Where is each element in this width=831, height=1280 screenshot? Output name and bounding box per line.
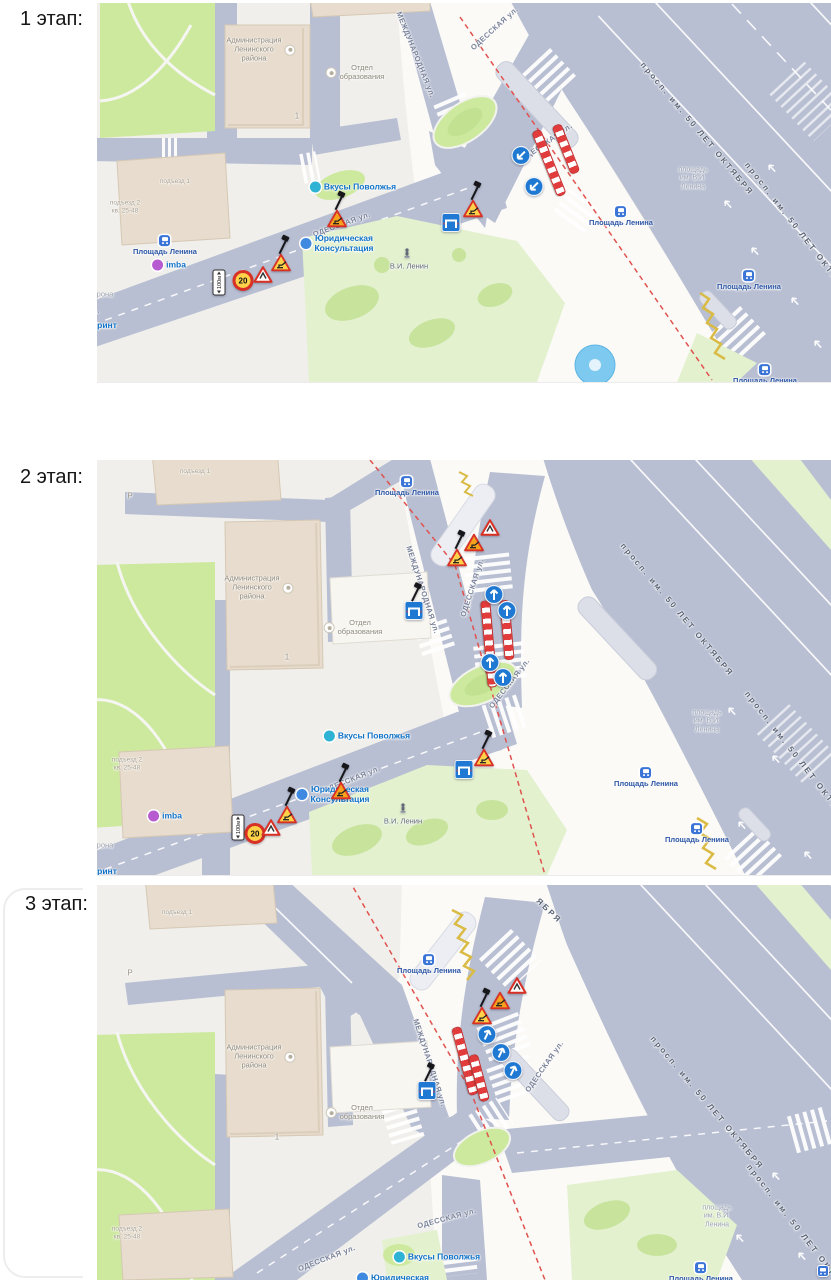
label-text: Юридическая Консультация [314,233,373,253]
bus-stop-icon [616,206,627,217]
roadworks-icon [474,749,494,767]
label-text: Площадь Ленина [375,489,439,498]
map-overlay-stage-1: МЕЖДУНАРОДНАЯ ул.ОДЕССКАЯ ул.ОДЕССКАЯ ул… [97,3,831,382]
speed-limit-20-sign: 20 [233,270,254,296]
label-text: Площадь Ленина [717,283,781,292]
mandatory-direction-sign [524,177,544,202]
sign-pole [471,185,480,200]
sign-pole [335,195,344,210]
sign-pole [339,767,348,782]
building-entrance-icon [285,45,296,56]
warning-triangle-icon [254,266,273,283]
label-text: Площадь Ленина [614,780,678,789]
detour-scheme-sign [455,760,474,784]
label-text: рона [97,291,113,300]
label-text: Вкусы Поволжья [324,182,396,192]
stage-3-label: 3 этап: [25,893,88,916]
poi-icon [296,789,307,800]
bus-stop-icon [817,1264,829,1280]
detour-diagram-icon [442,213,461,232]
sign-pole [482,734,491,749]
bus-label: Площадь Ленина [589,206,653,228]
detour-scheme-sign [418,1081,437,1105]
zone-distance-plate-sign: 100м [213,270,226,301]
bus-stop-icon [744,270,755,281]
label-text: Площадь Ленина [733,377,797,383]
label-text: Отдел образования [338,619,383,637]
street-label: МЕЖДУНАРОДНАЯ ул. [394,11,437,99]
speed-limit-icon: 20 [233,270,254,291]
label-text: площадь им. В.И. Ленина [678,167,707,192]
label-text: Отдел образования [340,1104,385,1122]
label-text: подъезд 2 кв. 25-48 [112,756,142,771]
label-text: просп. им. 50 ЛЕТ ОКТЯБРЯ [638,60,755,197]
window-corner-artifact [3,888,83,1278]
building-entrance-icon [326,1108,337,1119]
label-text: Р [127,491,132,500]
label-text: МЕЖДУНАРОДНАЯ ул. [394,11,437,99]
roadworks-sign [447,549,467,572]
bus-label: Площадь Ленина [665,823,729,845]
poi-icon [357,1273,368,1280]
lenin-monument-icon [403,246,411,264]
label-text: ОДЕССКАЯ ул. [417,1207,478,1231]
bldg-label: Отдел образования [326,1104,385,1122]
num-label: 1 [275,1132,279,1141]
bus-stop-icon [641,767,652,778]
tiny-label: подъезд 1 [160,178,190,186]
roadworks-sign [277,806,297,829]
poi-label: Юридическая [357,1273,429,1280]
bus-stop-icon [402,476,413,487]
poi-icon [324,731,335,742]
detour-diagram-icon [418,1081,437,1100]
ghost-label: площадь им. В.И. Ленина [678,167,707,192]
mandatory-direction-sign [511,146,531,171]
roadworks-icon [472,1007,492,1025]
mandatory-direction-sign [493,668,513,693]
map-stage-2: подъезд 1Площадь ЛенинаАдминистрация Лен… [97,460,831,876]
label-text: просп. им. 50 ЛЕТ ОКТЯБРЯ [648,1034,765,1171]
stage-1-label: 1 этап: [20,8,83,31]
warning-triangle-sign [254,266,273,288]
label-text: ЯБРЯ [534,896,564,925]
label-text: imba [166,260,186,270]
bldg-label: Администрация Ленинского района [224,575,293,602]
tiny-label: подъезд 2 кв. 25-48 [112,756,142,771]
direction-arrow-icon [524,177,544,197]
avenue-label: просп. им. 50 ЛЕТ ОКТЯБРЯ [743,161,831,302]
tiny-label: подъезд 2 кв. 25-48 [112,1225,142,1240]
building-entrance-icon [285,1052,296,1063]
roadworks-sign [331,782,351,805]
roadworks-sign [271,254,291,277]
avenue-label: просп. им. 50 ЛЕТ ОКТЯБРЯ [743,690,831,831]
bldg-label: Отдел образования [326,64,385,82]
avenue-label: просп. им. 50 ЛЕТ ОКТЯБРЯ [638,60,755,197]
lenin-monument-icon [399,801,407,819]
roadworks-icon [277,806,297,824]
street-label: ОДЕССКАЯ ул. [297,1244,357,1274]
poi-icon [310,182,321,193]
bus-label: Площадь Ленина [717,270,781,292]
mandatory-direction-sign [503,1061,523,1086]
roadworks-sign [474,749,494,772]
label-text: Площадь Ленина [589,219,653,228]
bldg-label: Администрация Ленинского района [226,37,295,64]
distance-plate-icon: 100м [213,270,226,296]
label-text: Площадь Ленина [669,1275,733,1280]
direction-arrow-icon [477,1025,497,1045]
poi-label: Вкусы Поволжья [310,182,396,193]
detour-scheme-sign [405,601,424,625]
roadworks-icon [463,200,483,218]
poi-label: Юридическая Консультация [300,233,373,253]
label-text: площадь им. В.И. Ленина [702,1205,731,1230]
bus-label: Площадь Ленина [133,235,197,257]
zone-distance-plate-sign: 100м [232,815,245,846]
direction-arrow-icon [511,146,531,166]
detour-diagram-icon [455,760,474,779]
roadworks-sign [327,210,347,233]
poi-icon [394,1252,405,1263]
sign-pole [425,1066,434,1081]
label-text: ринт [97,320,117,330]
ghost-label: площадь им. В.И. Ленина [702,1205,731,1230]
label-text: ринт [97,866,117,876]
map-overlay-stage-2: подъезд 1Площадь ЛенинаАдминистрация Лен… [97,460,831,875]
label-text: Площадь Ленина [665,836,729,845]
distance-value: 100м [236,821,242,834]
tiny2-label: рона [97,291,113,300]
speed-value: 20 [251,830,260,839]
tiny2-label: рона [97,842,113,851]
label-text: 1 [295,111,299,120]
label-text: Площадь Ленина [397,967,461,976]
distance-value: 100м [217,276,223,289]
stage-2-label: 2 этап: [20,466,83,489]
poi-label: ринт [97,866,117,876]
label-text: просп. им. 50 ЛЕТ ОКТЯБРЯ [743,161,831,302]
poi-label: Вкусы Поволжья [324,731,410,742]
label-text: просп. им. 50 ЛЕТ ОКТЯБРЯ [618,541,735,678]
bus-stop-icon [696,1262,707,1273]
roadworks-icon [271,254,291,272]
tiny-label: подъезд 1 [180,468,210,476]
street-label: ОДЕССКАЯ ул. [469,5,520,52]
map-stage-3: подъезд 1РПлощадь ЛенинаЯБРЯАдминистраци… [97,885,831,1280]
roadworks-icon [331,782,351,800]
roadworks-sign [490,992,510,1015]
bus-stop-icon [160,235,171,246]
label-text: Администрация Ленинского района [226,1044,281,1071]
label-text: Площадь Ленина [133,248,197,257]
roadworks-sign [463,200,483,223]
bldg-label: Отдел образования [324,619,383,637]
label-text: подъезд 1 [180,468,210,476]
label-text: ОДЕССКАЯ ул. [524,1040,566,1095]
bus-label: Площадь Ленина [669,1262,733,1280]
sign-pole [480,992,489,1007]
map-overlay-stage-3: подъезд 1РПлощадь ЛенинаЯБРЯАдминистраци… [97,885,831,1280]
roadworks-icon [464,534,484,552]
poi-label: ринт [97,320,117,330]
roadworks-icon [327,210,347,228]
sign-pole [412,586,421,601]
label-text: рона [97,842,113,851]
tiny-label: подъезд 1 [162,909,192,917]
label-text: ОДЕССКАЯ ул. [469,5,520,52]
num-label: 1 [285,652,289,661]
label-text: просп. им. 50 ЛЕТ ОКТЯБРЯ [743,690,831,831]
label-text: просп. им. 50 ЛЕТ ОКТЯБРЯ [745,1163,831,1280]
speed-value: 20 [239,277,248,286]
detour-diagram-icon [405,601,424,620]
statue-icon [403,248,411,259]
num-label: 1 [295,111,299,120]
label-text: Администрация Ленинского района [224,575,279,602]
poi-label: Вкусы Поволжья [394,1252,480,1263]
label-text: ОДЕССКАЯ ул. [297,1244,357,1274]
street-label: ОДЕССКАЯ ул. [524,1040,566,1095]
avenue-label: просп. им. 50 ЛЕТ ОКТЯБРЯ [618,541,735,678]
label-text: площадь им. В.И. Ленина [692,710,721,735]
building-entrance-icon [326,68,337,79]
bus-label: Площадь Ленина [375,476,439,498]
bus-stop-icon [692,823,703,834]
distance-plate-icon: 100м [232,815,245,841]
avenue-label: просп. им. 50 ЛЕТ ОКТЯБРЯ [648,1034,765,1171]
bus-label: Площадь Ленина [397,954,461,976]
sign-pole [279,239,288,254]
direction-arrow-icon [493,668,513,688]
label-text: подъезд 1 [162,909,192,917]
poi-label: imba [148,811,182,822]
sign-pole [455,534,464,549]
street-label: ОДЕССКАЯ ул. [97,306,101,335]
document-sheet: 1 этап: 2 этап: 3 этап: [0,0,831,1280]
ghost-label: площадь им. В.И. Ленина [692,710,721,735]
label-text: подъезд 1 [160,178,190,186]
label-text: Отдел образования [340,64,385,82]
bus-icon [817,1265,829,1277]
building-entrance-icon [324,623,335,634]
label-text: 1 [285,652,289,661]
num-label: Р [127,968,132,977]
bus-stop-icon [760,364,771,375]
bus-label: Площадь Ленина [614,767,678,789]
direction-arrow-icon [497,601,517,621]
roadworks-sign [464,534,484,557]
label-text: imba [162,811,182,821]
poi-icon [300,238,311,249]
street-label: ОДЕССКАЯ ул. [417,1207,478,1231]
label-text: ОДЕССКАЯ ул. [97,306,101,335]
label-text: подъезд 2 кв. 25-48 [112,1225,142,1240]
mandatory-direction-sign [497,601,517,626]
bus-stop-icon [424,954,435,965]
tiny-label: подъезд 2 кв. 25-48 [110,199,140,214]
poi-icon [148,811,159,822]
direction-arrow-icon [491,1043,511,1063]
sign-pole [285,791,294,806]
num-label: Р [127,491,132,500]
bldg-label: Администрация Ленинского района [226,1044,295,1071]
warning-triangle-icon [508,977,527,994]
building-entrance-icon [283,583,294,594]
label-text: подъезд 2 кв. 25-48 [110,199,140,214]
label-text: Юридическая [371,1273,429,1280]
label-text: Вкусы Поволжья [338,731,410,741]
poi-icon [152,260,163,271]
warning-triangle-sign [508,977,527,999]
bus-label: Площадь Ленина [733,364,797,383]
avenue-label: просп. им. 50 ЛЕТ ОКТЯБРЯ [745,1163,831,1280]
map-stage-1: МЕЖДУНАРОДНАЯ ул.ОДЕССКАЯ ул.ОДЕССКАЯ ул… [97,3,831,383]
statue-icon [399,803,407,814]
roadworks-icon [447,549,467,567]
label-text: Администрация Ленинского района [226,37,281,64]
label-text: 1 [275,1132,279,1141]
label-text: Вкусы Поволжья [408,1252,480,1262]
detour-scheme-sign [442,213,461,237]
label-text: Р [127,968,132,977]
avenue-label: ЯБРЯ [534,896,564,925]
poi-label: imba [152,260,186,271]
roadworks-icon [490,992,510,1010]
direction-arrow-icon [503,1061,523,1081]
